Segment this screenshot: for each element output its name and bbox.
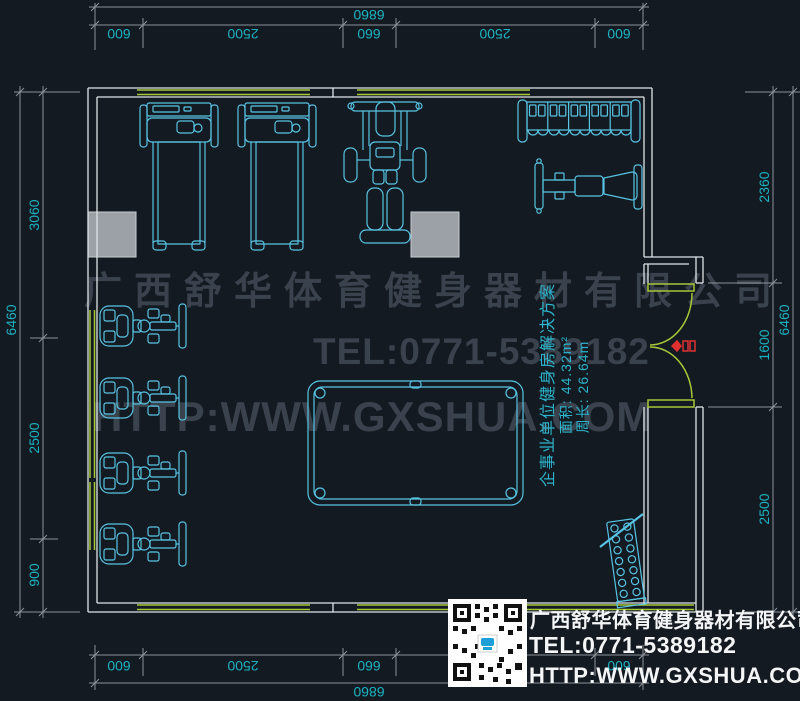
elliptical-trainer: [100, 522, 186, 566]
elliptical-trainer: [100, 376, 186, 420]
elliptical-trainer: [100, 451, 186, 495]
cad-floorplan-canvas: 广西舒华体育健身器材有限公司 TEL:0771-5389182 HTTP:WWW…: [0, 0, 800, 701]
logo-tel: TEL:0771-5389182: [529, 632, 736, 659]
dim-bottom-total: 6860: [353, 684, 384, 700]
dim-left-total: 6460: [3, 304, 19, 335]
dim-right-total: 6460: [776, 304, 792, 335]
treadmill: [140, 103, 218, 250]
dim-bottom-seg-2: 2500: [227, 658, 258, 674]
dim-right-seg-3: 2500: [756, 493, 772, 524]
dim-top-seg-5: 600: [607, 26, 630, 42]
dimension-lines: [14, 3, 800, 690]
dim-top-seg-4: 2500: [479, 26, 510, 42]
elliptical-trainer: [100, 304, 186, 348]
dim-left-seg-1: 3060: [26, 199, 42, 230]
billiard-table: [308, 381, 523, 505]
dim-left-seg-3: 900: [26, 563, 42, 586]
dim-top-seg-3: 660: [357, 26, 380, 42]
plate-rack: [600, 514, 646, 608]
qr-code: [448, 599, 527, 687]
window-glazing: [90, 90, 694, 610]
dumbbell-rack: [518, 100, 640, 142]
dim-right-seg-1: 2360: [756, 171, 772, 202]
treadmill: [238, 103, 316, 250]
dim-bottom-seg-1: 600: [107, 658, 130, 674]
room-info-title: 企事业单位健身房解决方案: [534, 283, 558, 487]
dim-top-seg-1: 600: [107, 26, 130, 42]
door-marker: [672, 341, 695, 351]
dim-top-total: 6860: [353, 7, 384, 23]
dim-right-seg-2: 1600: [756, 329, 772, 360]
adjustable-bench: [535, 159, 642, 213]
logo-company: 广西舒华体育健身器材有限公司: [530, 604, 800, 633]
room-info-perimeter: 周长: 26.64m: [573, 341, 593, 433]
floorplan-drawing: [0, 0, 800, 701]
dim-top-seg-2: 2500: [227, 26, 258, 42]
walls: [88, 88, 703, 612]
logo-url: HTTP:WWW.GXSHUA.COM: [529, 663, 800, 689]
entrance-door: [648, 284, 694, 407]
dim-left-seg-2: 2500: [26, 422, 42, 453]
dim-bottom-seg-3: 660: [357, 658, 380, 674]
